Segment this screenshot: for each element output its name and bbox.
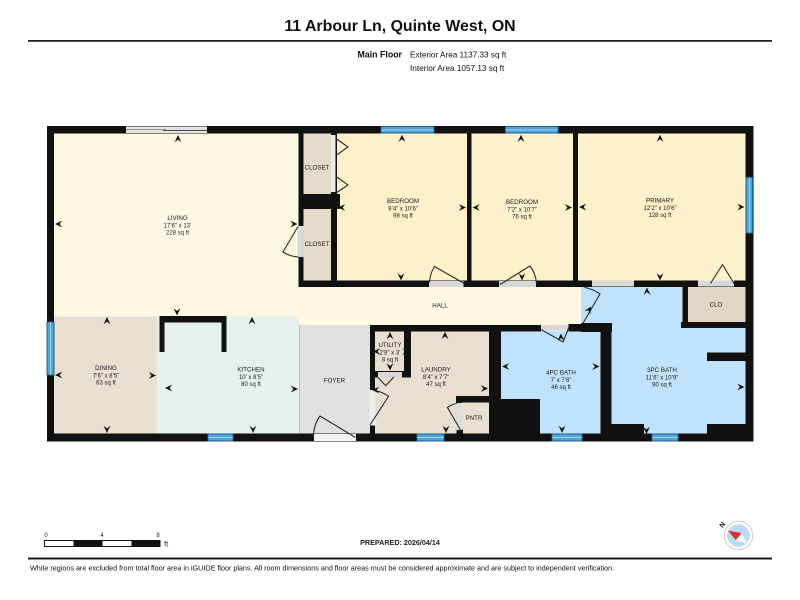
svg-text:White regions are excluded fro: White regions are excluded from total fl… (30, 564, 614, 573)
svg-text:7’2” x 10’7”: 7’2” x 10’7” (507, 207, 537, 213)
svg-text:7’ x 7’6”: 7’ x 7’6” (551, 378, 572, 384)
svg-text:Main Floor: Main Floor (358, 50, 403, 60)
svg-text:12’2” x 10’6”: 12’2” x 10’6” (643, 206, 676, 212)
svg-text:LAUNDRY: LAUNDRY (421, 367, 450, 374)
svg-text:46 sq ft: 46 sq ft (551, 385, 571, 391)
svg-text:3PC BATH: 3PC BATH (647, 367, 677, 374)
svg-text:98 sq ft: 98 sq ft (393, 214, 413, 220)
svg-text:FOYER: FOYER (324, 378, 346, 385)
svg-text:DINING: DINING (95, 365, 117, 372)
svg-text:80 sq ft: 80 sq ft (241, 382, 261, 388)
svg-text:11 Arbour Ln, Quinte West, ON: 11 Arbour Ln, Quinte West, ON (284, 18, 515, 35)
svg-text:47 sq ft: 47 sq ft (426, 382, 446, 388)
svg-text:KITCHEN: KITCHEN (237, 367, 264, 374)
svg-text:7’6” x 8’5”: 7’6” x 8’5” (93, 373, 119, 379)
svg-text:CLO: CLO (710, 302, 723, 309)
svg-text:228 sq ft: 228 sq ft (166, 231, 189, 237)
svg-text:PNTR: PNTR (466, 415, 483, 422)
svg-text:BEDROOM: BEDROOM (387, 198, 419, 205)
svg-text:BEDROOM: BEDROOM (506, 199, 538, 206)
svg-text:11’6” x 10’9”: 11’6” x 10’9” (646, 375, 679, 381)
svg-text:LIVING: LIVING (167, 215, 187, 222)
svg-text:76 sq ft: 76 sq ft (512, 215, 532, 221)
svg-text:8’4” x 7’7”: 8’4” x 7’7” (423, 375, 449, 381)
svg-text:63 sq ft: 63 sq ft (96, 381, 116, 387)
svg-text:10’ x 8’5”: 10’ x 8’5” (239, 375, 263, 381)
svg-text:Exterior Area 1137.33 sq ft: Exterior Area 1137.33 sq ft (410, 51, 507, 60)
svg-text:HALL: HALL (432, 303, 448, 310)
svg-text:2’8” x 3’: 2’8” x 3’ (379, 350, 400, 356)
svg-text:CLOSET: CLOSET (305, 241, 330, 248)
svg-text:17’6” x 13’: 17’6” x 13’ (164, 223, 192, 229)
svg-text:90 sq ft: 90 sq ft (652, 383, 672, 389)
svg-text:Interior Area 1057.13 sq ft: Interior Area 1057.13 sq ft (410, 64, 505, 73)
svg-text:128 sq ft: 128 sq ft (648, 213, 671, 219)
svg-text:9’4” x 10’6”: 9’4” x 10’6” (388, 206, 418, 212)
svg-text:PRIMARY: PRIMARY (646, 198, 674, 205)
svg-text:UTILITY: UTILITY (378, 342, 401, 349)
svg-text:PREPARED: 2026/04/14: PREPARED: 2026/04/14 (360, 538, 440, 547)
svg-text:4PC BATH: 4PC BATH (546, 370, 576, 377)
svg-text:CLOSET: CLOSET (305, 165, 330, 172)
svg-text:8 sq ft: 8 sq ft (382, 358, 399, 364)
